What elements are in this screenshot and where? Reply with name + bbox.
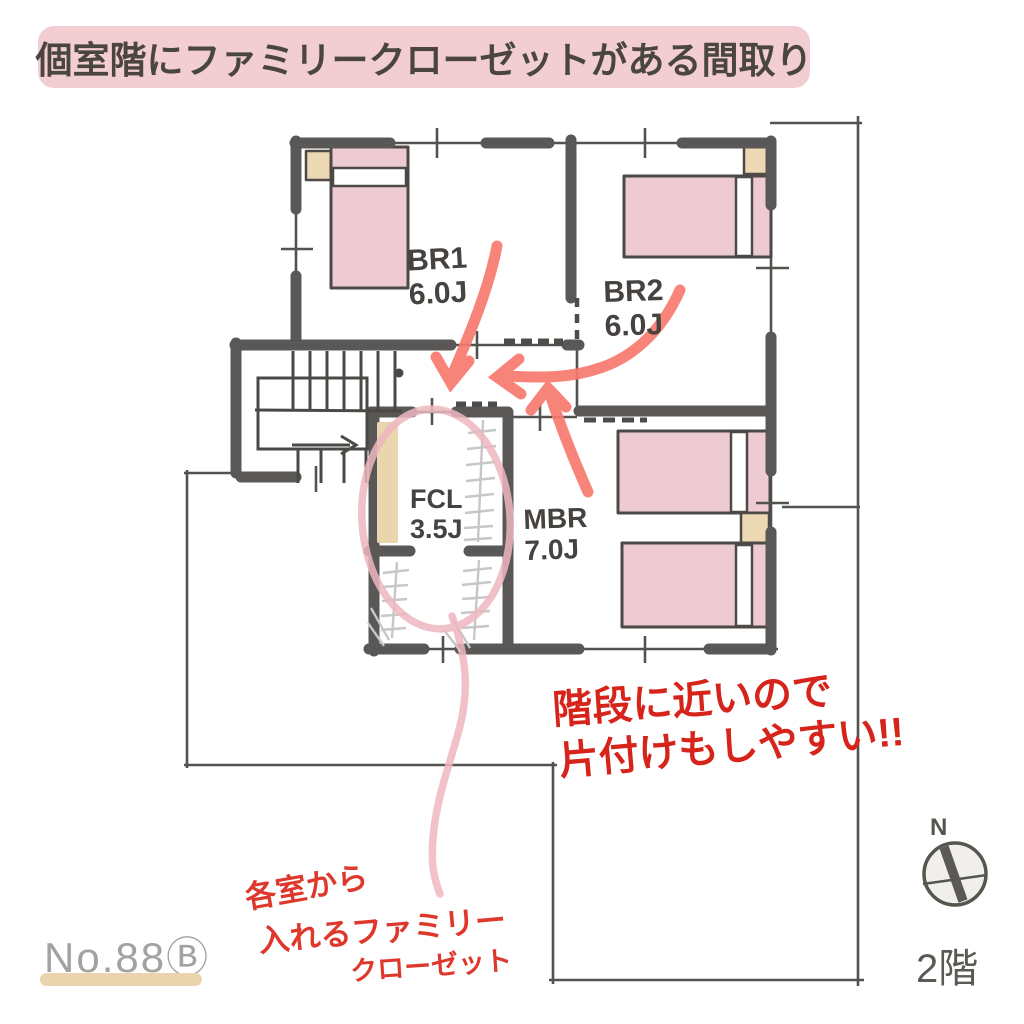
br2-bed [624,147,771,257]
mbr-bed-2 [622,513,770,627]
room-name-fcl: FCL [410,484,463,514]
arrow-from-mbr [531,388,588,492]
room-size-br1: 6.0J [408,275,470,312]
room-name-mbr: MBR [523,502,588,536]
room-label-mbr: MBR 7.0J [523,502,589,567]
plan-number-underline [40,973,202,986]
compass-icon [923,843,987,905]
room-size-mbr: 7.0J [524,533,589,567]
room-size-fcl: 3.5J [410,514,463,544]
room-label-br1: BR1 6.0J [406,241,469,311]
room-name-br2: BR2 [603,274,664,310]
room-name-br1: BR1 [406,241,468,278]
page-title: 個室階にファミリークローゼットがある間取り [36,30,813,84]
room-label-br2: BR2 6.0J [603,274,665,343]
room-size-br2: 6.0J [604,308,665,344]
mbr-bed-1 [618,431,770,513]
title-banner: 個室階にファミリークローゼットがある間取り [38,26,810,88]
room-label-fcl: FCL 3.5J [410,484,463,544]
floor-plan-drawing [0,0,1024,1024]
closet-note-leader-line [432,616,465,894]
floor-label: 2階 [916,936,978,994]
compass-north-label: N [930,814,947,842]
br1-bed [306,147,408,288]
